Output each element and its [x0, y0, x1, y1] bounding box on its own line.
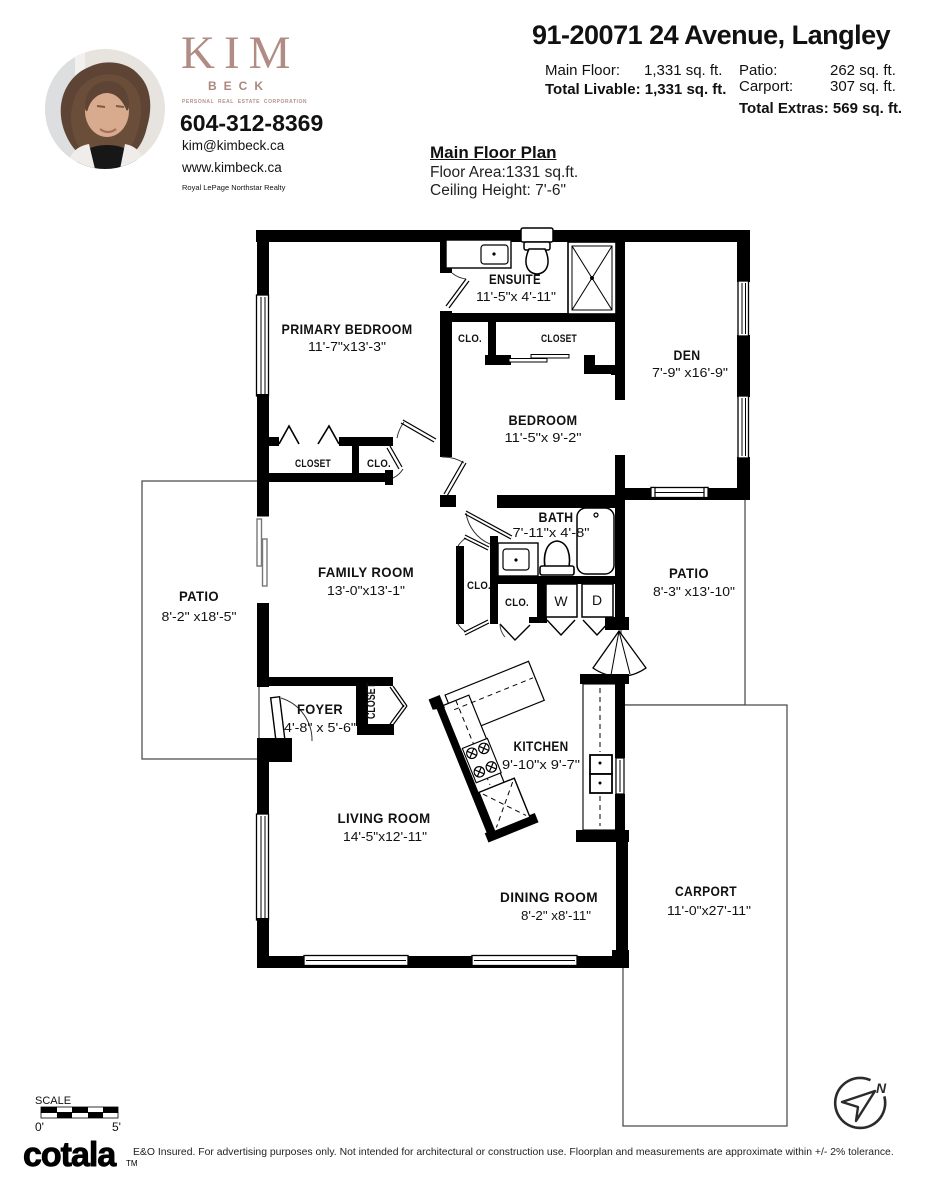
svg-text:0': 0'	[35, 1120, 44, 1134]
svg-text:9'-10"x 9'-7": 9'-10"x 9'-7"	[502, 757, 580, 772]
svg-text:PATIO: PATIO	[669, 565, 709, 581]
svg-text:KITCHEN: KITCHEN	[514, 738, 569, 754]
svg-text:BATH: BATH	[539, 509, 574, 525]
svg-text:CLOSET: CLOSET	[366, 683, 378, 719]
svg-text:CARPORT: CARPORT	[675, 883, 737, 899]
svg-text:N: N	[876, 1080, 887, 1096]
svg-text:FOYER: FOYER	[297, 701, 343, 717]
svg-text:DEN: DEN	[674, 347, 701, 363]
svg-text:CLO.: CLO.	[467, 580, 491, 592]
svg-text:CLO.: CLO.	[458, 333, 482, 345]
svg-text:8'-3" x13'-10": 8'-3" x13'-10"	[653, 584, 735, 599]
svg-text:SCALE: SCALE	[35, 1095, 71, 1107]
svg-text:E&O Insured. For advertising p: E&O Insured. For advertising purposes on…	[133, 1147, 894, 1158]
svg-text:CLOSET: CLOSET	[295, 458, 331, 470]
svg-text:FAMILY ROOM: FAMILY ROOM	[318, 564, 414, 580]
svg-text:W: W	[554, 593, 568, 609]
svg-text:4'-8" x 5'-6": 4'-8" x 5'-6"	[284, 720, 356, 735]
svg-text:CLOSET: CLOSET	[541, 333, 577, 345]
svg-text:PATIO: PATIO	[179, 588, 219, 604]
svg-text:TM: TM	[126, 1159, 138, 1168]
svg-text:D: D	[592, 592, 602, 608]
svg-text:PRIMARY BEDROOM: PRIMARY BEDROOM	[282, 321, 413, 337]
svg-text:DINING ROOM: DINING ROOM	[500, 889, 598, 905]
svg-text:LIVING ROOM: LIVING ROOM	[338, 810, 431, 826]
svg-text:8'-2" x18'-5": 8'-2" x18'-5"	[162, 609, 237, 624]
svg-text:CLO.: CLO.	[505, 597, 529, 609]
svg-text:11'-5"x 9'-2": 11'-5"x 9'-2"	[505, 430, 582, 445]
svg-text:11'-5"x 4'-11": 11'-5"x 4'-11"	[476, 289, 556, 304]
svg-text:13'-0"x13'-1": 13'-0"x13'-1"	[327, 583, 405, 598]
svg-text:8'-2" x8'-11": 8'-2" x8'-11"	[521, 908, 591, 923]
svg-text:5': 5'	[112, 1120, 121, 1134]
svg-text:11'-0"x27'-11": 11'-0"x27'-11"	[667, 903, 751, 918]
svg-text:ENSUITE: ENSUITE	[489, 271, 541, 287]
svg-text:7'-11"x 4'-8": 7'-11"x 4'-8"	[513, 525, 590, 540]
svg-text:7'-9" x16'-9": 7'-9" x16'-9"	[652, 365, 728, 380]
svg-text:CLO.: CLO.	[367, 458, 391, 470]
svg-text:cotala: cotala	[23, 1136, 117, 1174]
svg-text:11'-7"x13'-3": 11'-7"x13'-3"	[308, 339, 386, 354]
svg-text:BEDROOM: BEDROOM	[509, 412, 578, 428]
svg-text:14'-5"x12'-11": 14'-5"x12'-11"	[343, 829, 427, 844]
